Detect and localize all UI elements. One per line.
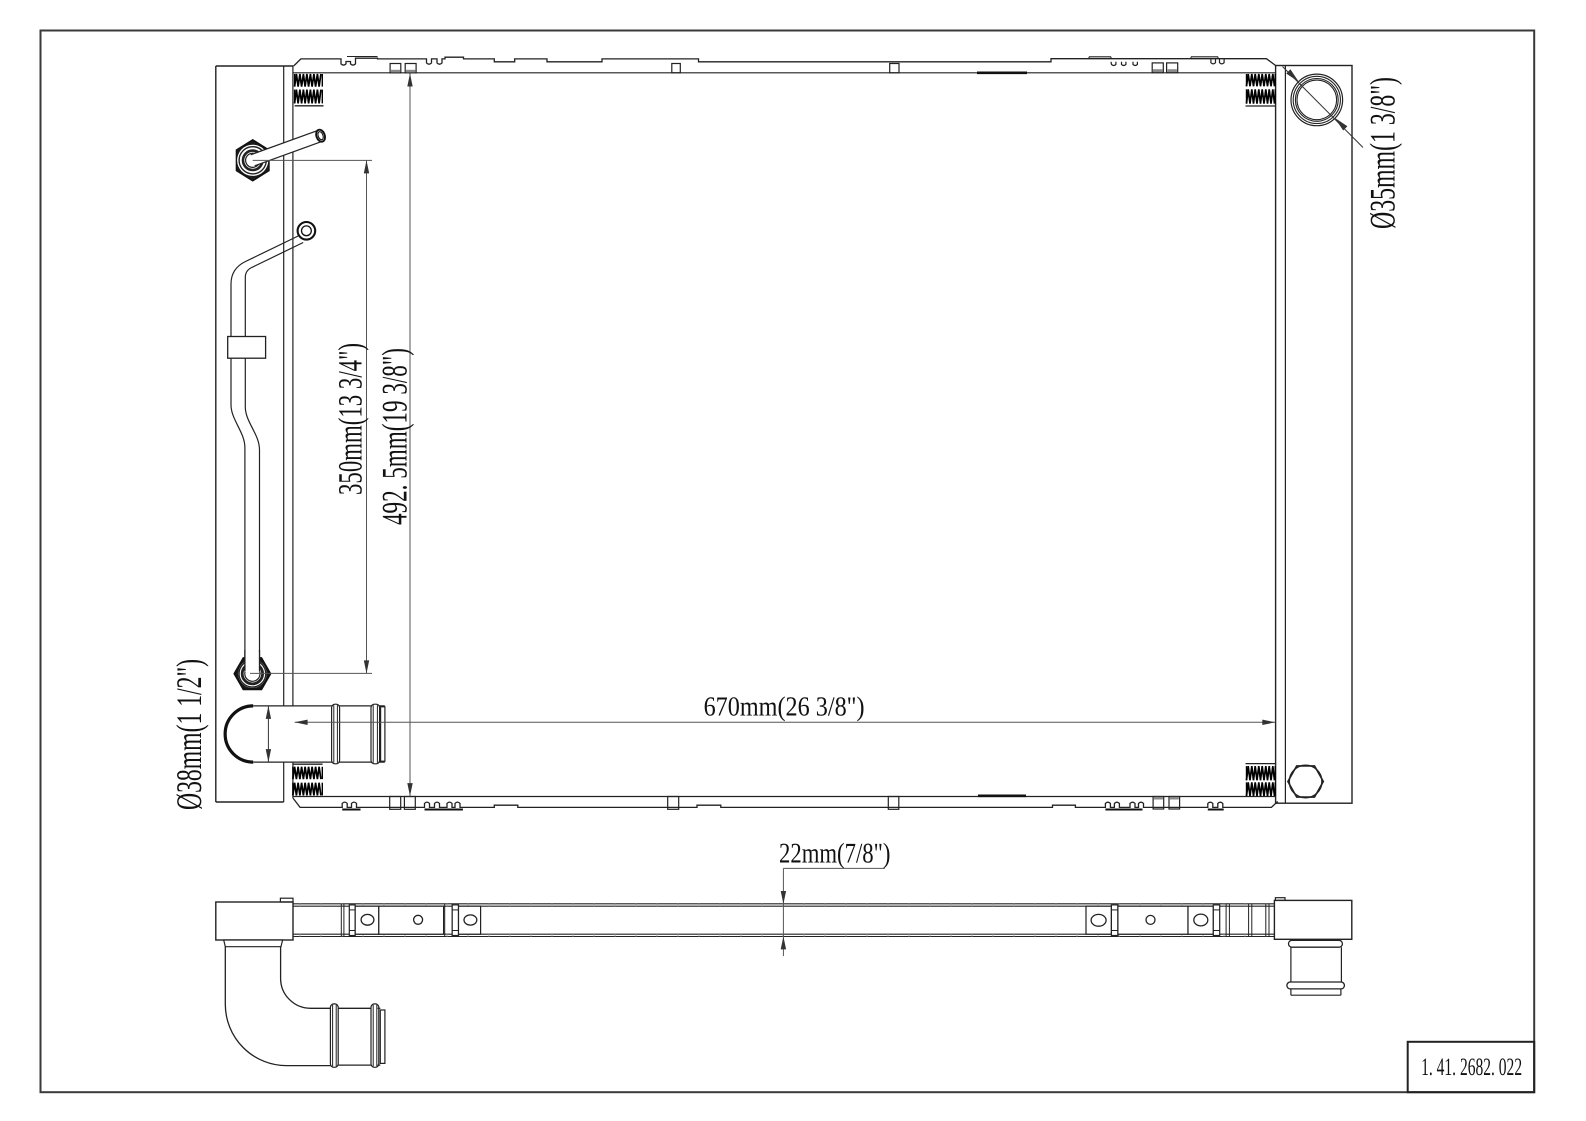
svg-text:22mm(7/8"): 22mm(7/8") bbox=[779, 839, 891, 870]
svg-text:670mm(26 3/8"): 670mm(26 3/8") bbox=[704, 690, 865, 721]
svg-text:350mm(13 3/4"): 350mm(13 3/4") bbox=[333, 343, 370, 495]
svg-text:Ø35mm(1 3/8"): Ø35mm(1 3/8") bbox=[1363, 77, 1403, 229]
svg-text:Ø38mm(1 1/2"): Ø38mm(1 1/2") bbox=[169, 659, 209, 810]
svg-text:492. 5mm(19 3/8"): 492. 5mm(19 3/8") bbox=[375, 348, 415, 525]
svg-text:1. 41. 2682. 022: 1. 41. 2682. 022 bbox=[1421, 1054, 1522, 1081]
